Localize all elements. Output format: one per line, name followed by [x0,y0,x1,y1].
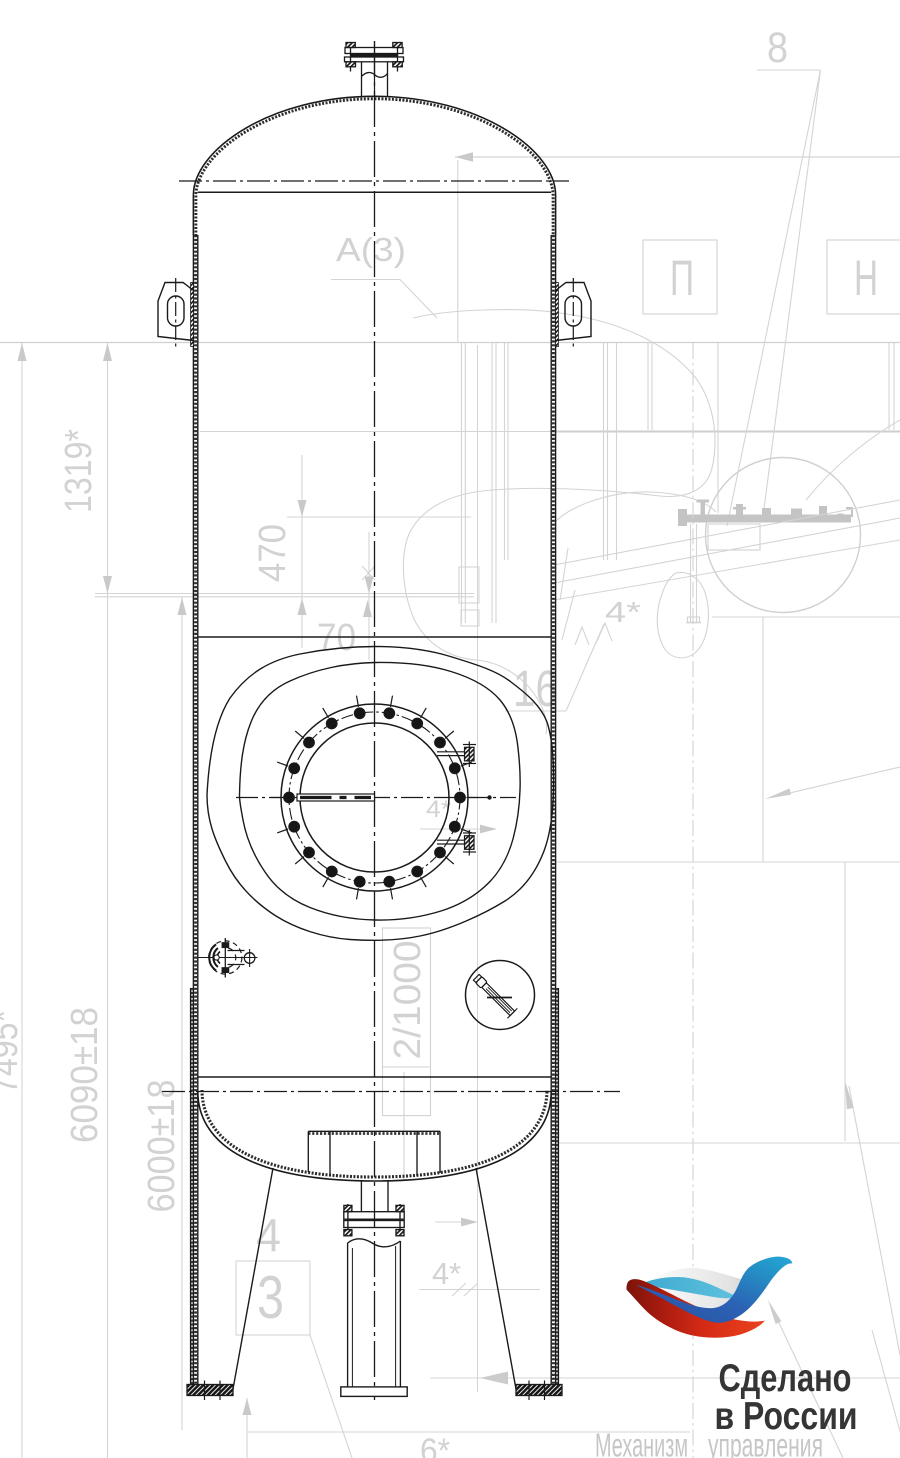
svg-text:70: 70 [317,617,356,659]
svg-text:Н: Н [854,250,878,306]
svg-text:7495*: 7495* [0,1010,26,1094]
svg-text:4*: 4* [432,1256,461,1291]
svg-text:Механизм: Механизм [595,1427,688,1458]
svg-text:4: 4 [256,1209,281,1261]
svg-text:4*: 4* [605,597,641,629]
svg-text:6*: 6* [420,1432,450,1458]
svg-text:1319*: 1319* [58,429,100,513]
svg-text:A(3): A(3) [336,231,406,268]
svg-text:Сделано: Сделано [719,1357,852,1400]
svg-text:П: П [670,250,694,306]
svg-text:470: 470 [252,524,294,582]
svg-text:в России: в России [715,1395,858,1438]
svg-text:2/1000: 2/1000 [387,941,429,1060]
svg-text:3: 3 [257,1264,284,1331]
svg-text:6090±18: 6090±18 [64,1007,106,1143]
svg-text:6000±18: 6000±18 [141,1080,183,1213]
svg-text:4*: 4* [426,796,451,823]
svg-text:8: 8 [767,24,788,72]
